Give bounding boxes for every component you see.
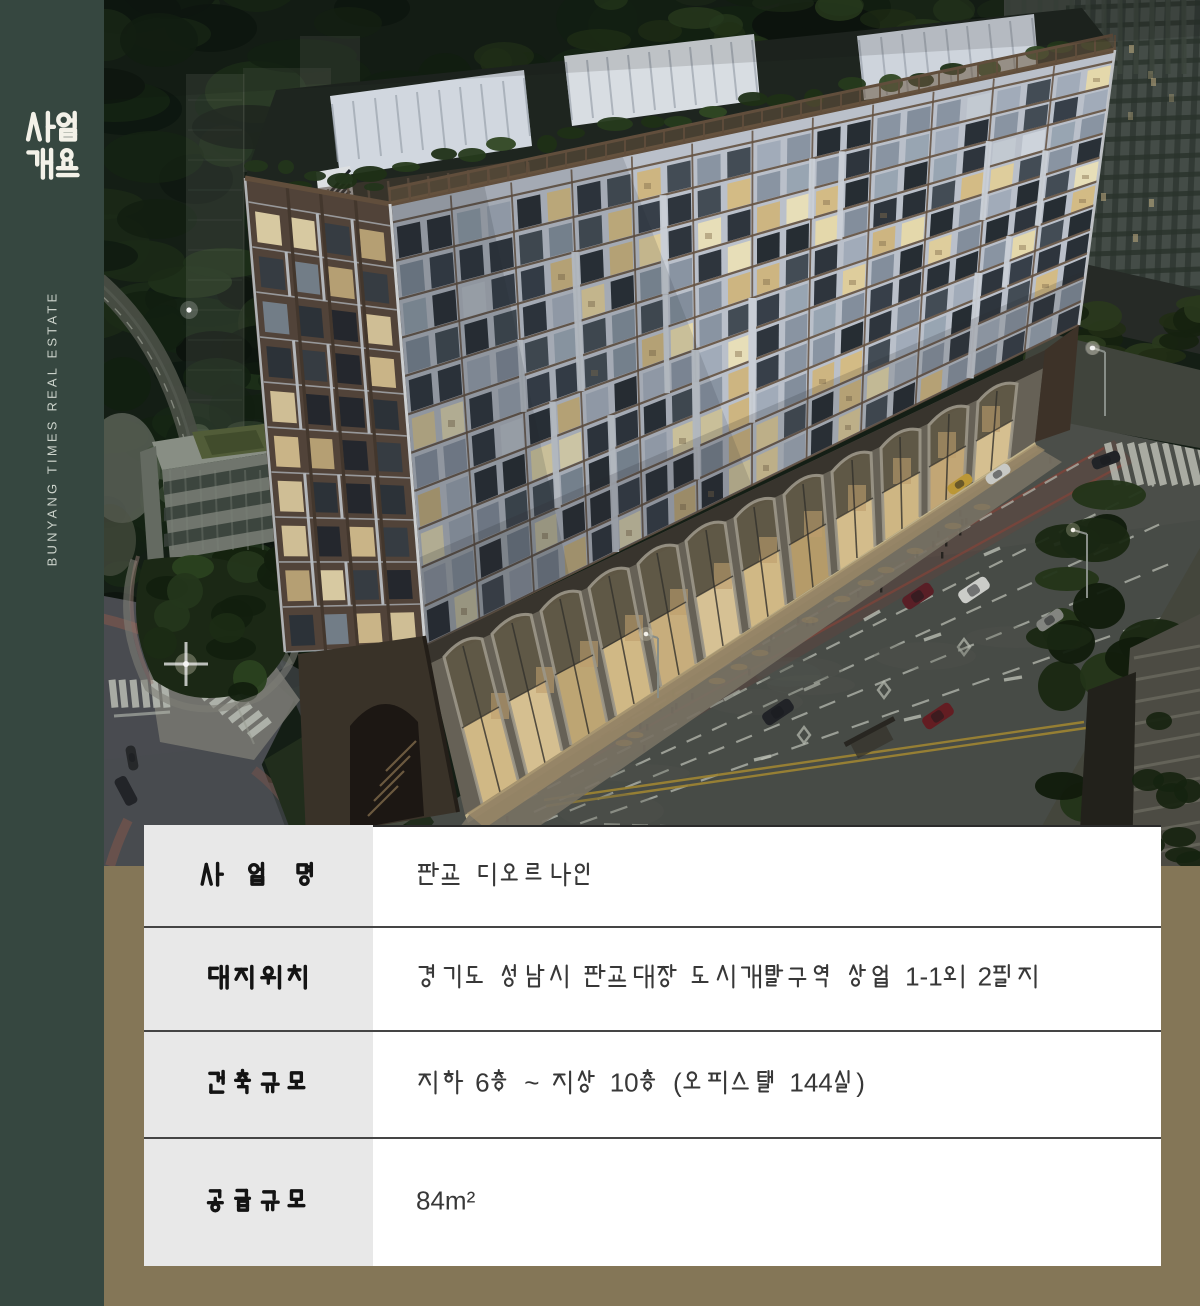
svg-text:6: 6	[475, 1068, 489, 1098]
svg-text:144: 144	[789, 1068, 832, 1098]
svg-text:): )	[856, 1068, 865, 1098]
svg-text:2: 2	[978, 962, 992, 992]
svg-text:1-1: 1-1	[905, 962, 943, 992]
svg-text:84m²: 84m²	[416, 1186, 476, 1216]
svg-text:10: 10	[610, 1068, 639, 1098]
svg-text:(: (	[673, 1068, 682, 1098]
svg-text:~: ~	[524, 1068, 539, 1098]
